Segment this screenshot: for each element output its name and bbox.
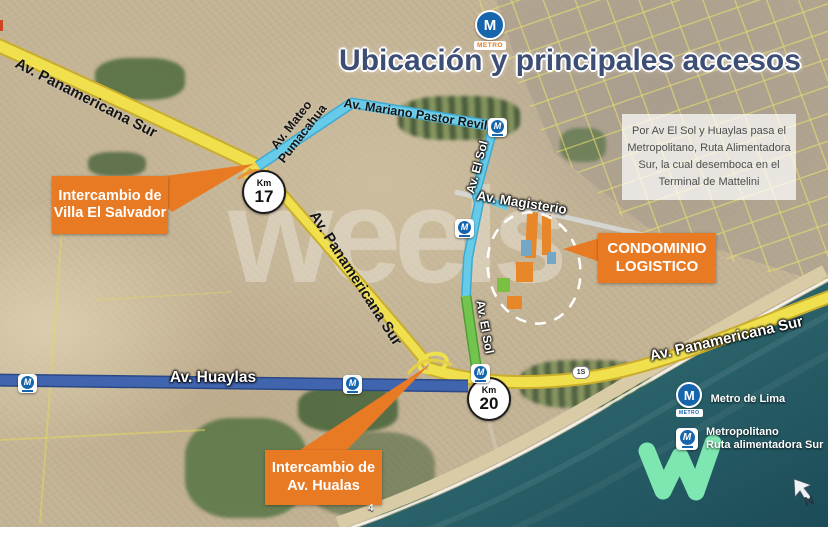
slide-title: Ubicación y principales accesos <box>335 44 805 78</box>
station-caption-bar <box>682 446 693 448</box>
station-icon-huaylas-west: M <box>18 374 37 393</box>
legend: M METRO Metro de Lima M Metropolitano Ru… <box>676 382 823 451</box>
metropolitano-m-icon: M <box>491 120 504 133</box>
callout-av-hualas: Intercambio de Av. Hualas <box>265 450 382 505</box>
panamericana-nw <box>0 44 258 166</box>
metro-m-icon: M <box>475 10 505 40</box>
station-caption-bar <box>492 134 503 136</box>
metro-lima-legend-logo: M METRO <box>676 382 703 417</box>
station-caption-bar <box>459 235 470 237</box>
km20-badge: Km 20 <box>467 377 511 421</box>
minor-road <box>0 430 205 440</box>
cyan-route-casing <box>258 103 500 166</box>
callout-condominio-text: CONDOMINIO LOGISTICO <box>598 240 716 275</box>
legend-item-metro: M METRO Metro de Lima <box>676 382 823 417</box>
slide: weels <box>0 0 828 542</box>
metro-caption: METRO <box>676 409 703 417</box>
km17-value: 17 <box>255 188 274 205</box>
edge-artifact <box>0 20 3 31</box>
condo-building <box>542 215 551 255</box>
station-caption-bar <box>22 390 33 392</box>
station-icon-huaylas-mid: M <box>343 375 362 394</box>
condominio-callout-pointer <box>563 238 600 262</box>
station-icon-km20: M <box>471 364 490 383</box>
metropolitano-m-icon: M <box>458 221 471 234</box>
bottom-white-strip <box>0 527 828 542</box>
metropolitano-m-icon: M <box>474 366 487 379</box>
condo-building <box>507 296 522 309</box>
condo-building <box>497 278 510 292</box>
metro-lima-logo-top: M METRO <box>474 10 506 50</box>
satellite-map: weels <box>0 0 828 527</box>
callout-villa-el-salvador: Intercambio de Villa El Salvador <box>52 176 168 234</box>
route-shield-1s: 1S <box>572 366 590 379</box>
info-box: Por Av El Sol y Huaylas pasa el Metropol… <box>622 114 796 200</box>
callout-villa-text: Intercambio de Villa El Salvador <box>52 188 168 222</box>
metropolitano-legend-logo: M <box>676 428 698 450</box>
info-box-text: Por Av El Sol y Huaylas pasa el Metropol… <box>627 125 790 188</box>
callout-hualas-text: Intercambio de Av. Hualas <box>265 460 382 494</box>
huaylas-road <box>0 380 468 386</box>
route-shield-text: 1S <box>577 369 586 376</box>
page-marker: 4 <box>368 503 374 514</box>
metro-m-icon: M <box>676 382 702 408</box>
km20-value: 20 <box>480 395 499 412</box>
condo-building <box>521 240 532 256</box>
metropolitano-m-icon: M <box>21 376 34 389</box>
station-caption-bar <box>475 380 486 382</box>
station-caption-bar <box>347 391 358 393</box>
metropolitano-m-icon: M <box>680 430 695 445</box>
condo-building <box>547 252 556 264</box>
metropolitano-m-icon: M <box>346 377 359 390</box>
km17-badge: Km 17 <box>242 170 286 214</box>
legend-metro-label: Metro de Lima <box>711 393 786 406</box>
legend-metropolitano-label: Metropolitano Ruta alimentadora Sur <box>706 426 823 451</box>
station-icon-el-sol: M <box>455 219 474 238</box>
condo-building <box>516 262 533 282</box>
station-icon-pastor-revilla: M <box>488 118 507 137</box>
legend-item-metropolitano: M Metropolitano Ruta alimentadora Sur <box>676 426 823 451</box>
callout-condominio-logistico: CONDOMINIO LOGISTICO <box>598 233 716 283</box>
minor-road <box>96 292 232 300</box>
legend-metropolitano-line2: Ruta alimentadora Sur <box>706 439 823 452</box>
legend-metropolitano-line1: Metropolitano <box>706 426 823 439</box>
metro-caption: METRO <box>474 41 506 50</box>
